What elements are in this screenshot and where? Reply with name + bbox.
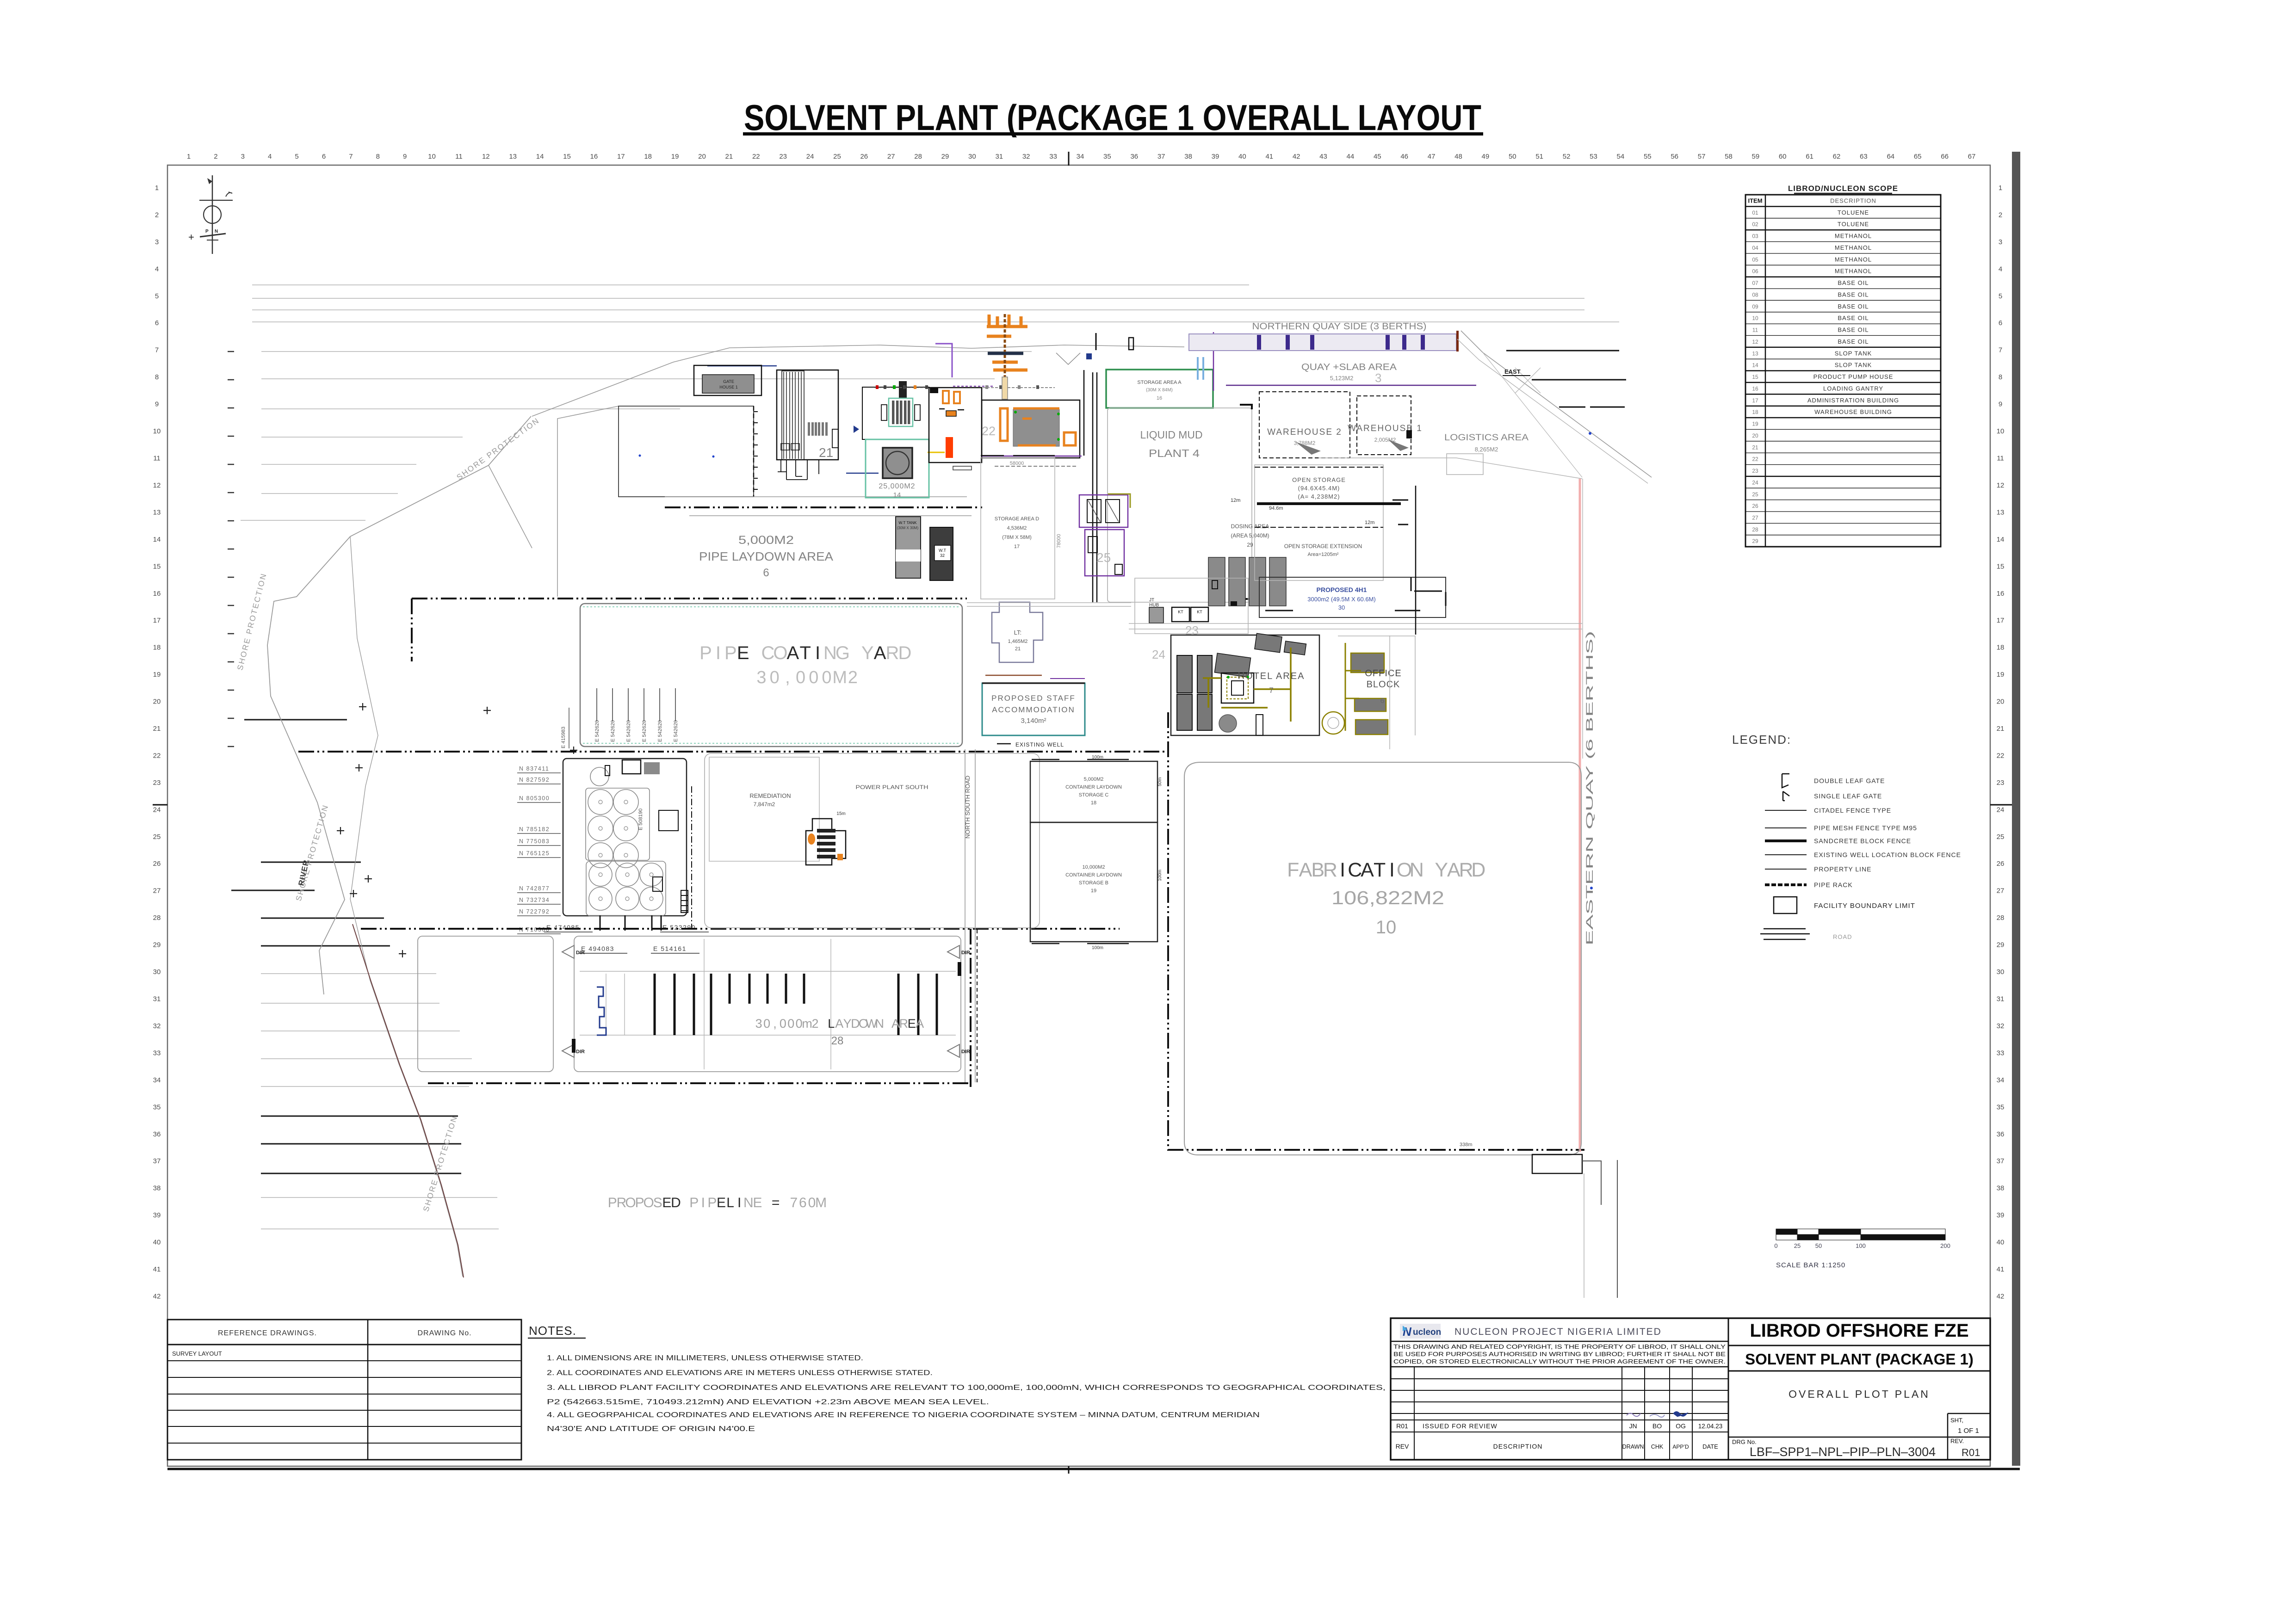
svg-text:39: 39 bbox=[1212, 153, 1219, 160]
svg-text:22: 22 bbox=[752, 153, 760, 160]
svg-text:25: 25 bbox=[833, 153, 841, 160]
svg-text:7: 7 bbox=[155, 346, 159, 354]
svg-text:1 OF 1: 1 OF 1 bbox=[1958, 1427, 1979, 1435]
svg-text:33: 33 bbox=[1997, 1049, 2005, 1057]
svg-text:12.04.23: 12.04.23 bbox=[1698, 1423, 1723, 1430]
svg-text:E 523290: E 523290 bbox=[662, 924, 696, 931]
svg-text:A: A bbox=[835, 1017, 843, 1031]
svg-text:I: I bbox=[1340, 859, 1345, 881]
svg-text:12: 12 bbox=[1752, 339, 1758, 345]
svg-text:78000: 78000 bbox=[1056, 534, 1062, 548]
svg-text:LBF–SPP1–NPL–PIP–PLN–3004: LBF–SPP1–NPL–PIP–PLN–3004 bbox=[1750, 1445, 1936, 1459]
svg-text:20: 20 bbox=[1752, 432, 1758, 439]
svg-text:30: 30 bbox=[1338, 604, 1345, 611]
svg-text:DATE: DATE bbox=[1702, 1443, 1718, 1450]
svg-text:15m: 15m bbox=[836, 811, 845, 816]
svg-text:42: 42 bbox=[153, 1293, 161, 1301]
svg-text:3,140m²: 3,140m² bbox=[1021, 717, 1046, 725]
svg-text:KT: KT bbox=[1197, 610, 1202, 614]
svg-text:19: 19 bbox=[1091, 888, 1096, 894]
svg-text:N: N bbox=[875, 1017, 884, 1031]
svg-text:38: 38 bbox=[1997, 1185, 2005, 1192]
svg-text:R: R bbox=[1323, 859, 1337, 881]
svg-text:,: , bbox=[773, 1017, 777, 1031]
svg-text:O: O bbox=[625, 1195, 636, 1210]
svg-text:29: 29 bbox=[1752, 538, 1758, 544]
svg-text:APP’D: APP’D bbox=[1672, 1444, 1689, 1450]
svg-text:N 785182: N 785182 bbox=[519, 826, 550, 833]
svg-text:29: 29 bbox=[1247, 542, 1253, 548]
svg-text:CHK: CHK bbox=[1651, 1444, 1664, 1450]
svg-text:STORAGE AREA A: STORAGE AREA A bbox=[1137, 380, 1182, 385]
svg-text:49: 49 bbox=[1482, 153, 1490, 160]
svg-text:ITEM: ITEM bbox=[1748, 197, 1762, 204]
svg-text:OPEN STORAGE EXTENSION: OPEN STORAGE EXTENSION bbox=[1284, 543, 1362, 549]
svg-text:1: 1 bbox=[1999, 184, 2002, 192]
svg-text:58000: 58000 bbox=[1010, 461, 1024, 466]
svg-text:DRAWN: DRAWN bbox=[1622, 1444, 1644, 1450]
svg-text:20: 20 bbox=[698, 153, 706, 160]
svg-text:SURVEY LAYOUT: SURVEY LAYOUT bbox=[172, 1350, 222, 1357]
svg-text:23: 23 bbox=[153, 779, 161, 787]
svg-text:27: 27 bbox=[887, 153, 895, 160]
svg-text:12: 12 bbox=[153, 481, 161, 489]
svg-text:R01: R01 bbox=[1962, 1447, 1980, 1458]
svg-text:EASTERN QUAY (6 BERTHS): EASTERN QUAY (6 BERTHS) bbox=[1584, 631, 1595, 945]
svg-text:7: 7 bbox=[1269, 686, 1273, 695]
svg-text:E 542620: E 542620 bbox=[594, 720, 600, 742]
svg-text:HOUSE 1: HOUSE 1 bbox=[719, 385, 738, 389]
svg-text:7: 7 bbox=[349, 153, 353, 160]
svg-text:m: m bbox=[802, 1017, 812, 1031]
svg-text:CONTAINER LAYDOWN: CONTAINER LAYDOWN bbox=[1065, 872, 1122, 878]
svg-text:D: D bbox=[671, 1195, 681, 1210]
svg-text:METHANOL: METHANOL bbox=[1835, 244, 1872, 251]
svg-text:DOSING AREA: DOSING AREA bbox=[1231, 523, 1269, 530]
svg-text:11: 11 bbox=[455, 153, 463, 160]
svg-text:22: 22 bbox=[1997, 752, 2005, 760]
svg-text:F: F bbox=[1287, 859, 1299, 881]
svg-text:32: 32 bbox=[153, 1022, 161, 1030]
svg-text:100m: 100m bbox=[1157, 870, 1163, 881]
svg-text:62: 62 bbox=[1833, 153, 1841, 160]
svg-text:10: 10 bbox=[428, 153, 436, 160]
svg-text:A: A bbox=[891, 1017, 900, 1031]
svg-text:30: 30 bbox=[968, 153, 976, 160]
svg-text:39: 39 bbox=[1997, 1211, 2005, 1219]
svg-text:SINGLE LEAF GATE: SINGLE LEAF GATE bbox=[1814, 792, 1882, 800]
svg-text:3. ALL LIBROD PLANT FACILI: 3. ALL LIBROD PLANT FACILITY COORDINATES… bbox=[547, 1384, 1386, 1392]
svg-text:C: C bbox=[761, 643, 775, 663]
svg-text:10,000M2: 10,000M2 bbox=[1083, 864, 1105, 870]
svg-text:(AREA 5,040M): (AREA 5,040M) bbox=[1231, 532, 1269, 539]
svg-text:2. ALL COORDINATES AND ELE: 2. ALL COORDINATES AND ELEVATIONS ARE IN… bbox=[547, 1369, 933, 1377]
svg-text:01: 01 bbox=[1752, 210, 1758, 216]
svg-text:37: 37 bbox=[153, 1157, 161, 1165]
svg-text:15: 15 bbox=[563, 153, 571, 160]
svg-text:N 837411: N 837411 bbox=[519, 765, 549, 772]
svg-text:26: 26 bbox=[1752, 503, 1758, 509]
svg-text:13: 13 bbox=[1752, 350, 1758, 357]
svg-text:45: 45 bbox=[1374, 153, 1381, 160]
svg-text:9: 9 bbox=[1999, 401, 2002, 408]
svg-text:10: 10 bbox=[1752, 315, 1758, 321]
svg-text:BE USED FOR PURPOSES AUTHORISE: BE USED FOR PURPOSES AUTHORISED IN WRITI… bbox=[1393, 1351, 1726, 1358]
svg-text:SHT,: SHT, bbox=[1950, 1417, 1963, 1424]
svg-text:17: 17 bbox=[153, 617, 161, 624]
svg-text:LOADING GANTRY: LOADING GANTRY bbox=[1823, 385, 1883, 392]
svg-text:OVERALL PLOT PLAN: OVERALL PLOT PLAN bbox=[1789, 1388, 1930, 1400]
svg-text:JT: JT bbox=[1149, 598, 1154, 603]
svg-text:25,000M2: 25,000M2 bbox=[879, 482, 915, 490]
svg-text:PROPERTY LINE: PROPERTY LINE bbox=[1814, 865, 1872, 873]
svg-text:55: 55 bbox=[1644, 153, 1652, 160]
svg-text:A: A bbox=[1361, 859, 1374, 881]
svg-text:5: 5 bbox=[155, 292, 159, 300]
svg-text:METHANOL: METHANOL bbox=[1835, 256, 1872, 263]
svg-text:E 508190: E 508190 bbox=[638, 808, 644, 830]
svg-text:METHANOL: METHANOL bbox=[1835, 268, 1872, 275]
svg-text:44: 44 bbox=[1347, 153, 1355, 160]
svg-text:13: 13 bbox=[153, 508, 161, 516]
svg-text:1. ALL DIMENSIONS ARE IN: 1. ALL DIMENSIONS ARE IN MILLIMETERS, UN… bbox=[547, 1354, 863, 1362]
svg-text:E 542620: E 542620 bbox=[642, 720, 647, 742]
svg-text:25: 25 bbox=[1794, 1242, 1801, 1249]
svg-text:E: E bbox=[717, 1195, 726, 1210]
svg-text:43: 43 bbox=[1319, 153, 1327, 160]
svg-text:19: 19 bbox=[671, 153, 679, 160]
svg-text:DIR: DIR bbox=[576, 1049, 585, 1055]
svg-text:37: 37 bbox=[1997, 1157, 2005, 1165]
svg-text:20: 20 bbox=[1997, 698, 2005, 706]
svg-text:35: 35 bbox=[1103, 153, 1111, 160]
svg-text:G: G bbox=[835, 643, 850, 663]
svg-text:13: 13 bbox=[509, 153, 517, 160]
svg-text:5: 5 bbox=[1999, 292, 2002, 300]
svg-text:P: P bbox=[608, 1195, 617, 1210]
svg-text:6: 6 bbox=[1380, 697, 1385, 705]
svg-text:15: 15 bbox=[1997, 562, 2005, 570]
svg-text:M: M bbox=[815, 1195, 827, 1210]
svg-text:61: 61 bbox=[1806, 153, 1813, 160]
svg-text:48: 48 bbox=[1454, 153, 1462, 160]
svg-text:0: 0 bbox=[822, 668, 831, 687]
svg-text:07: 07 bbox=[1752, 280, 1758, 286]
svg-text:(94.6X45.4M): (94.6X45.4M) bbox=[1298, 485, 1340, 492]
svg-text:P: P bbox=[724, 643, 737, 663]
svg-text:67: 67 bbox=[1968, 153, 1976, 160]
svg-text:E 542620: E 542620 bbox=[610, 720, 616, 742]
svg-text:6: 6 bbox=[322, 153, 326, 160]
svg-text:STORAGE B: STORAGE B bbox=[1079, 880, 1108, 886]
svg-text:7,847m2: 7,847m2 bbox=[754, 801, 775, 808]
svg-text:E 514161: E 514161 bbox=[653, 945, 687, 952]
svg-text:338m: 338m bbox=[1460, 1142, 1473, 1148]
svg-text:28: 28 bbox=[1997, 914, 2005, 922]
svg-text:LIBROD OFFSHORE FZE: LIBROD OFFSHORE FZE bbox=[1750, 1321, 1968, 1341]
svg-text:6: 6 bbox=[763, 567, 769, 579]
svg-text:16: 16 bbox=[1997, 590, 2005, 598]
svg-text:22: 22 bbox=[1752, 456, 1758, 463]
svg-text:38: 38 bbox=[153, 1185, 161, 1192]
svg-text:ucleon: ucleon bbox=[1413, 1327, 1441, 1337]
svg-text:(30M X 84M): (30M X 84M) bbox=[1146, 388, 1173, 393]
svg-text:E: E bbox=[753, 1195, 762, 1210]
svg-text:N 732734: N 732734 bbox=[519, 897, 550, 903]
svg-text:26: 26 bbox=[153, 860, 161, 868]
svg-text:NORTHERN QUAY SIDE (3 BERTHS): NORTHERN QUAY SIDE (3 BERTHS) bbox=[1252, 321, 1427, 332]
svg-text:21: 21 bbox=[725, 153, 733, 160]
svg-text:6: 6 bbox=[1999, 319, 2002, 327]
svg-text:A: A bbox=[786, 643, 799, 663]
svg-text:4,536M2: 4,536M2 bbox=[1007, 525, 1027, 531]
svg-text:E: E bbox=[908, 1017, 916, 1031]
svg-text:M: M bbox=[832, 668, 847, 687]
svg-text:52: 52 bbox=[1563, 153, 1571, 160]
svg-text:09: 09 bbox=[1752, 303, 1758, 310]
svg-text:DRG No.: DRG No. bbox=[1732, 1438, 1757, 1445]
svg-text:37: 37 bbox=[1157, 153, 1165, 160]
svg-text:9: 9 bbox=[155, 401, 159, 408]
svg-text:COPIED, OR STORED ELECTRONICAL: COPIED, OR STORED ELECTRONICALLY WITHOUT… bbox=[1393, 1358, 1726, 1365]
svg-text:27: 27 bbox=[1997, 887, 2005, 895]
svg-text:18: 18 bbox=[1752, 409, 1758, 415]
svg-text:2: 2 bbox=[214, 153, 217, 160]
svg-text:0: 0 bbox=[780, 1017, 786, 1031]
svg-text:22: 22 bbox=[153, 752, 161, 760]
svg-text:(A= 4,238M2): (A= 4,238M2) bbox=[1298, 493, 1340, 500]
svg-text:18: 18 bbox=[1091, 800, 1096, 806]
svg-text:,: , bbox=[785, 668, 790, 687]
svg-text:54: 54 bbox=[1617, 153, 1625, 160]
svg-text:65: 65 bbox=[1914, 153, 1922, 160]
svg-text:TOLUENE: TOLUENE bbox=[1838, 209, 1869, 216]
svg-text:W.T: W.T bbox=[939, 548, 946, 553]
svg-text:KT: KT bbox=[1178, 610, 1183, 614]
svg-text:42: 42 bbox=[1997, 1293, 2005, 1301]
svg-text:51: 51 bbox=[1535, 153, 1543, 160]
svg-text:1: 1 bbox=[155, 184, 159, 192]
svg-text:EXISTING WELL: EXISTING WELL bbox=[1015, 741, 1064, 748]
svg-text:E 474085: E 474085 bbox=[546, 924, 580, 931]
svg-text:11: 11 bbox=[1997, 455, 2004, 463]
svg-text:16: 16 bbox=[153, 590, 161, 598]
svg-text:ACCOMMODATION: ACCOMMODATION bbox=[992, 705, 1075, 714]
svg-text:R01: R01 bbox=[1396, 1422, 1408, 1430]
svg-text:LIBROD/NUCLEON SCOPE: LIBROD/NUCLEON SCOPE bbox=[1788, 184, 1898, 193]
svg-text:D: D bbox=[1471, 859, 1485, 881]
svg-text:21: 21 bbox=[153, 725, 161, 733]
svg-text:0: 0 bbox=[770, 668, 780, 687]
svg-text:1: 1 bbox=[187, 153, 191, 160]
svg-text:12: 12 bbox=[1997, 481, 2005, 489]
svg-text:NUCLEON PROJECT NIGERIA LIMITE: NUCLEON PROJECT NIGERIA LIMITED bbox=[1454, 1327, 1662, 1337]
svg-text:50: 50 bbox=[1815, 1242, 1822, 1249]
svg-text:REV.: REV. bbox=[1950, 1438, 1964, 1444]
svg-text:DESCRIPTION: DESCRIPTION bbox=[1493, 1443, 1543, 1450]
svg-text:BASE OIL: BASE OIL bbox=[1838, 291, 1869, 298]
svg-text:4: 4 bbox=[1999, 265, 2002, 273]
svg-text:WAREHOUSE BUILDING: WAREHOUSE BUILDING bbox=[1814, 408, 1892, 415]
svg-text:A: A bbox=[1299, 859, 1312, 881]
svg-text:REFERENCE DRAWINGS.: REFERENCE DRAWINGS. bbox=[218, 1329, 317, 1337]
svg-text:LIQUID MUD: LIQUID MUD bbox=[1140, 429, 1203, 441]
svg-text:17: 17 bbox=[1014, 544, 1020, 549]
svg-text:SLOP TANK: SLOP TANK bbox=[1835, 362, 1872, 369]
svg-text:N 827592: N 827592 bbox=[519, 777, 550, 783]
svg-text:BASE OIL: BASE OIL bbox=[1838, 327, 1869, 333]
svg-text:21: 21 bbox=[1997, 725, 2005, 733]
svg-text:34: 34 bbox=[1997, 1076, 2005, 1084]
svg-text:47: 47 bbox=[1428, 153, 1436, 160]
svg-text:N: N bbox=[215, 229, 218, 234]
svg-text:EXISTING WELL LOCATION BLOCK F: EXISTING WELL LOCATION BLOCK FENCE bbox=[1814, 851, 1961, 858]
svg-text:A: A bbox=[874, 643, 886, 663]
svg-text:BASE OIL: BASE OIL bbox=[1838, 279, 1869, 286]
svg-text:1,465M2: 1,465M2 bbox=[1008, 639, 1028, 644]
svg-text:GATE: GATE bbox=[723, 379, 734, 384]
svg-text:3: 3 bbox=[756, 668, 766, 687]
svg-text:30: 30 bbox=[1997, 968, 2005, 976]
svg-text:(30M X 30M): (30M X 30M) bbox=[897, 526, 919, 530]
svg-text:P: P bbox=[699, 643, 712, 663]
svg-text:PIPE MESH FENCE TYPE M95: PIPE MESH FENCE TYPE M95 bbox=[1814, 824, 1917, 832]
svg-text:CITADEL FENCE TYPE: CITADEL FENCE TYPE bbox=[1814, 807, 1891, 814]
svg-text:DIR: DIR bbox=[961, 1049, 970, 1055]
svg-text:OFFICE: OFFICE bbox=[1365, 668, 1401, 679]
svg-text:36: 36 bbox=[1130, 153, 1138, 160]
svg-text:17: 17 bbox=[617, 153, 625, 160]
svg-text:200: 200 bbox=[1940, 1242, 1950, 1249]
svg-text:P: P bbox=[689, 1195, 699, 1210]
svg-text:REMEDIATION: REMEDIATION bbox=[749, 792, 791, 799]
svg-text:11: 11 bbox=[153, 455, 161, 463]
svg-text:16: 16 bbox=[1157, 395, 1162, 401]
svg-text:P: P bbox=[707, 1195, 717, 1210]
svg-text:LEGEND:: LEGEND: bbox=[1732, 733, 1791, 747]
svg-text:NORTH SOUTH ROAD: NORTH SOUTH ROAD bbox=[964, 776, 971, 839]
svg-text:E 542620: E 542620 bbox=[673, 720, 679, 742]
svg-text:17: 17 bbox=[1752, 397, 1758, 404]
svg-text:3: 3 bbox=[155, 238, 159, 246]
svg-text:BASE OIL: BASE OIL bbox=[1838, 303, 1869, 310]
svg-text:28: 28 bbox=[831, 1035, 844, 1047]
svg-text:WAREHOUSE 2: WAREHOUSE 2 bbox=[1267, 427, 1342, 437]
svg-text:06: 06 bbox=[1752, 268, 1758, 275]
svg-text:02: 02 bbox=[1752, 221, 1758, 228]
svg-text:25: 25 bbox=[153, 833, 161, 841]
svg-text:O: O bbox=[644, 1195, 654, 1210]
svg-text:63: 63 bbox=[1860, 153, 1868, 160]
svg-text:36: 36 bbox=[1997, 1130, 2005, 1138]
svg-text:5: 5 bbox=[295, 153, 298, 160]
svg-text:23: 23 bbox=[779, 153, 787, 160]
svg-text:C: C bbox=[1348, 859, 1362, 881]
svg-text:15: 15 bbox=[1752, 374, 1758, 380]
svg-text:46: 46 bbox=[1400, 153, 1408, 160]
svg-text:66: 66 bbox=[1941, 153, 1949, 160]
svg-text:DRAWING No.: DRAWING No. bbox=[417, 1329, 471, 1337]
svg-text:BASE OIL: BASE OIL bbox=[1838, 338, 1869, 345]
svg-text:3000m2 (49.5M X 60.6M): 3000m2 (49.5M X 60.6M) bbox=[1307, 596, 1375, 603]
svg-text:24: 24 bbox=[1997, 806, 2005, 814]
svg-text:I: I bbox=[716, 643, 721, 663]
svg-text:QUAY +SLAB AREA: QUAY +SLAB AREA bbox=[1301, 362, 1397, 372]
svg-text:L: L bbox=[828, 1017, 835, 1031]
svg-text:N 775083: N 775083 bbox=[519, 838, 550, 845]
svg-text:2: 2 bbox=[155, 211, 159, 219]
svg-text:+: + bbox=[188, 231, 194, 243]
svg-text:35: 35 bbox=[153, 1103, 161, 1111]
svg-text:D: D bbox=[898, 643, 911, 663]
svg-text:41: 41 bbox=[153, 1265, 161, 1273]
svg-text:27: 27 bbox=[153, 887, 161, 895]
svg-text:16: 16 bbox=[590, 153, 598, 160]
svg-text:Area=1205m²: Area=1205m² bbox=[1308, 552, 1339, 557]
svg-text:E 415983: E 415983 bbox=[561, 727, 566, 748]
svg-text:8: 8 bbox=[155, 373, 159, 381]
svg-text:TOLUENE: TOLUENE bbox=[1838, 221, 1869, 228]
svg-text:SOLVENT PLANT (PACKAGE 1): SOLVENT PLANT (PACKAGE 1) bbox=[1745, 1351, 1974, 1368]
svg-text:05: 05 bbox=[1752, 256, 1758, 263]
svg-text:24: 24 bbox=[153, 806, 161, 814]
svg-text:B: B bbox=[1311, 859, 1324, 881]
svg-text:8: 8 bbox=[1999, 373, 2002, 381]
svg-text:0: 0 bbox=[1774, 1242, 1777, 1249]
svg-text:6: 6 bbox=[799, 1195, 807, 1210]
svg-text:50: 50 bbox=[1509, 153, 1516, 160]
svg-text:19: 19 bbox=[1997, 671, 2005, 679]
svg-text:Y: Y bbox=[843, 1017, 852, 1031]
svg-text:T: T bbox=[1374, 859, 1386, 881]
svg-text:6: 6 bbox=[155, 319, 159, 327]
svg-text:10: 10 bbox=[1376, 917, 1397, 938]
svg-text:4: 4 bbox=[155, 265, 159, 273]
svg-text:28: 28 bbox=[153, 914, 161, 922]
svg-text:BO: BO bbox=[1652, 1422, 1662, 1430]
svg-text:11: 11 bbox=[1752, 327, 1758, 333]
svg-text:R: R bbox=[899, 1017, 909, 1031]
svg-text:28: 28 bbox=[914, 153, 922, 160]
svg-text:14: 14 bbox=[153, 536, 161, 543]
svg-text:ISSUED FOR REVIEW: ISSUED FOR REVIEW bbox=[1423, 1422, 1498, 1430]
svg-text:I: I bbox=[701, 1195, 705, 1210]
svg-text:58: 58 bbox=[1725, 153, 1733, 160]
svg-text:THIS DRAWING AND RELATED COPYR: THIS DRAWING AND RELATED COPYRIGHT, IS T… bbox=[1393, 1344, 1726, 1350]
svg-text:4: 4 bbox=[268, 153, 272, 160]
svg-text:SANDCRETE BLOCK FENCE: SANDCRETE BLOCK FENCE bbox=[1814, 837, 1911, 845]
svg-text:N: N bbox=[823, 643, 837, 663]
svg-text:(78M X 58M): (78M X 58M) bbox=[1002, 535, 1032, 540]
svg-text:7: 7 bbox=[790, 1195, 798, 1210]
svg-text:0: 0 bbox=[787, 1017, 794, 1031]
svg-text:DIR: DIR bbox=[961, 950, 970, 956]
svg-text:5,123M2: 5,123M2 bbox=[1330, 375, 1354, 382]
svg-text:19: 19 bbox=[153, 671, 161, 679]
svg-text:OPEN STORAGE: OPEN STORAGE bbox=[1292, 476, 1346, 483]
svg-text:16: 16 bbox=[1752, 385, 1758, 392]
svg-text:PIPE LAYDOWN AREA: PIPE LAYDOWN AREA bbox=[699, 549, 834, 563]
svg-text:HUB: HUB bbox=[1149, 603, 1159, 608]
svg-text:3: 3 bbox=[1375, 371, 1381, 385]
svg-text:36: 36 bbox=[153, 1130, 161, 1138]
svg-text:56: 56 bbox=[1671, 153, 1678, 160]
svg-text:2: 2 bbox=[1999, 211, 2002, 219]
svg-text:BLOCK: BLOCK bbox=[1367, 679, 1400, 690]
svg-text:25: 25 bbox=[1997, 833, 2005, 841]
svg-text:12m: 12m bbox=[1365, 520, 1374, 525]
svg-text:59: 59 bbox=[1752, 153, 1760, 160]
